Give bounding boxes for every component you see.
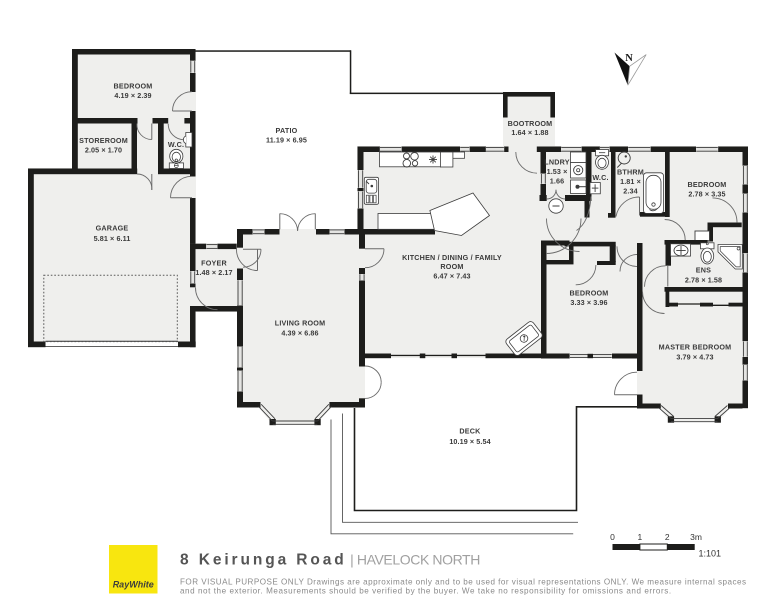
svg-text:1:101: 1:101 [699,549,722,559]
svg-text:8 Keirunga Road | HAVELOCK NOR: 8 Keirunga Road | HAVELOCK NORTH [180,552,480,569]
svg-text:W.C.: W.C. [168,140,184,149]
svg-text:1.66: 1.66 [550,177,564,186]
svg-text:4.19 × 2.39: 4.19 × 2.39 [114,91,151,100]
svg-text:BEDROOM: BEDROOM [570,289,609,298]
svg-text:11.19 × 6.95: 11.19 × 6.95 [266,136,307,145]
svg-text:3m: 3m [690,532,702,542]
svg-text:DECK: DECK [459,427,481,436]
svg-text:1.64 × 1.88: 1.64 × 1.88 [511,128,548,137]
svg-text:10.19 × 5.54: 10.19 × 5.54 [449,437,490,446]
svg-text:FOR VISUAL PURPOSE ONLY Drawin: FOR VISUAL PURPOSE ONLY Drawings are app… [180,578,747,587]
svg-text:1: 1 [638,532,643,542]
svg-text:PATIO: PATIO [276,126,298,135]
svg-text:BOOTROOM: BOOTROOM [508,119,553,128]
svg-text:W.C.: W.C. [592,173,608,182]
svg-text:2.34: 2.34 [623,187,637,196]
svg-text:5.81 × 6.11: 5.81 × 6.11 [94,234,131,243]
svg-text:1.53 ×: 1.53 × [547,167,568,176]
svg-text:4.39 × 6.86: 4.39 × 6.86 [281,329,318,338]
svg-text:RayWhite: RayWhite [113,580,154,590]
svg-text:MASTER BEDROOM: MASTER BEDROOM [659,343,732,352]
svg-text:GARAGE: GARAGE [96,224,129,233]
svg-text:3.33 × 3.96: 3.33 × 3.96 [570,298,607,307]
svg-text:BEDROOM: BEDROOM [688,180,727,189]
svg-text:3.79 × 4.73: 3.79 × 4.73 [676,353,713,362]
svg-text:2.78 × 3.35: 2.78 × 3.35 [688,190,725,199]
svg-text:BEDROOM: BEDROOM [114,82,153,91]
svg-text:and not the exterior. Measurem: and not the exterior. Measurements shoul… [180,587,672,596]
svg-text:LNDRY: LNDRY [544,158,570,167]
svg-text:1.48 × 2.17: 1.48 × 2.17 [195,268,232,277]
svg-text:STOREROOM: STOREROOM [79,136,128,145]
svg-text:KITCHEN / DINING / FAMILY: KITCHEN / DINING / FAMILY [402,253,502,262]
svg-text:LIVING ROOM: LIVING ROOM [275,319,326,328]
svg-text:FOYER: FOYER [201,259,227,268]
svg-text:N: N [625,53,633,64]
svg-text:1.81 ×: 1.81 × [620,177,641,186]
svg-text:2.78 × 1.58: 2.78 × 1.58 [685,276,722,285]
svg-text:2.05 × 1.70: 2.05 × 1.70 [85,145,122,154]
svg-text:ENS: ENS [696,266,711,275]
svg-text:BTHRM: BTHRM [617,168,644,177]
svg-text:0: 0 [610,532,615,542]
svg-text:ROOM: ROOM [440,262,463,271]
svg-text:2: 2 [665,532,670,542]
svg-text:6.47 × 7.43: 6.47 × 7.43 [433,272,470,281]
